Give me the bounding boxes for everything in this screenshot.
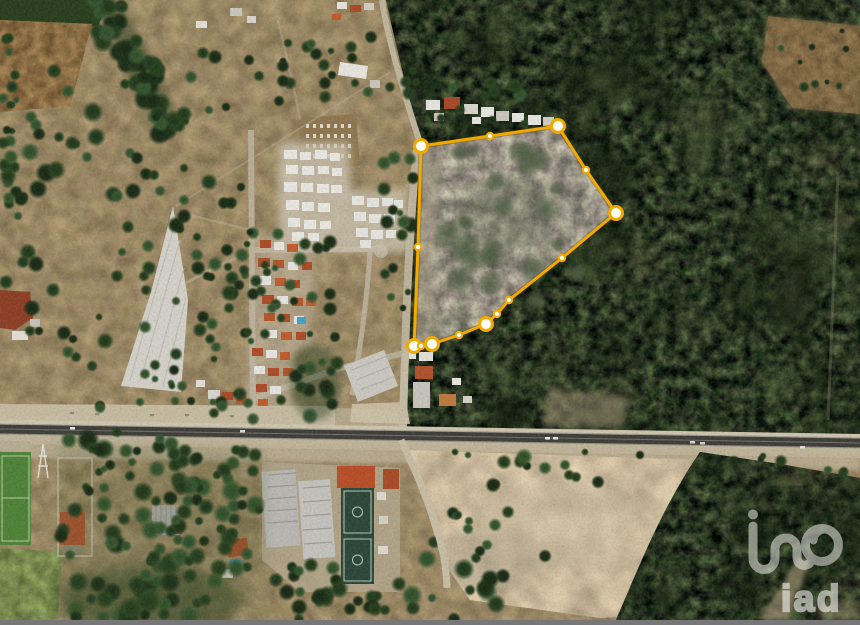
svg-text:iad: iad: [781, 578, 842, 619]
